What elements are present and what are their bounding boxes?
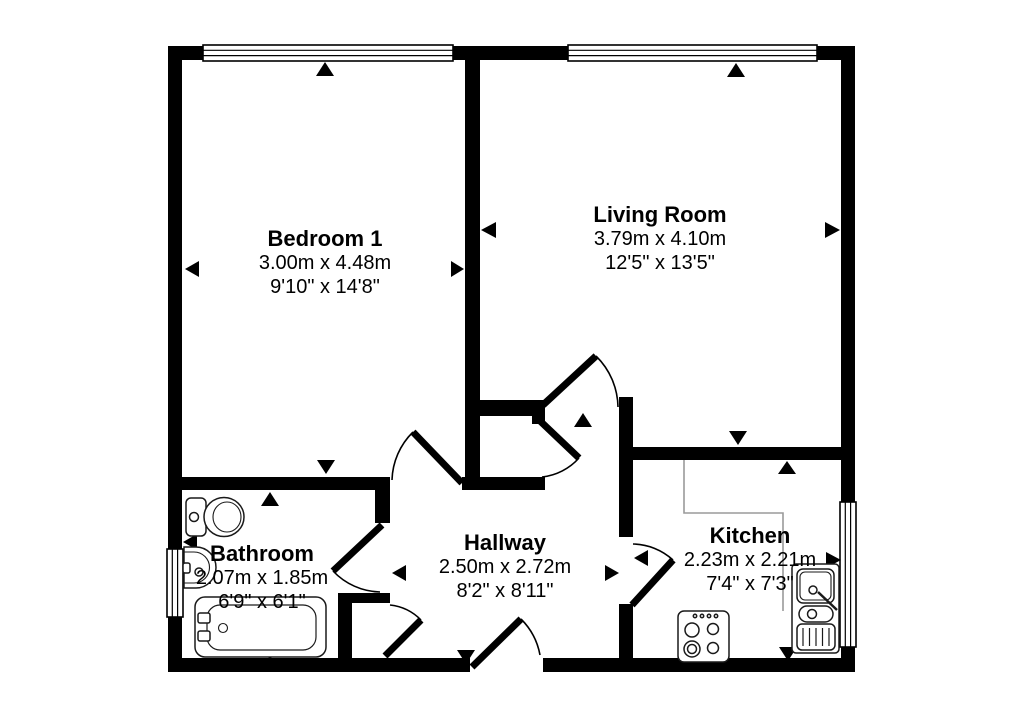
room-label-bathroom: Bathroom 2.07m x 1.85m 6'9" x 6'1" bbox=[196, 542, 328, 614]
arrow-up-icon bbox=[778, 461, 796, 474]
bath-tap bbox=[198, 613, 210, 623]
wall-segment bbox=[465, 60, 480, 490]
hob-knob bbox=[693, 614, 696, 617]
kitchen-window bbox=[840, 502, 856, 647]
door-leaf bbox=[385, 620, 421, 656]
room-name: Bathroom bbox=[196, 542, 328, 566]
room-size-imperial: 7'4" x 7'3" bbox=[684, 572, 816, 596]
bath-tap bbox=[198, 631, 210, 641]
room-label-living-room: Living Room 3.79m x 4.10m 12'5" x 13'5" bbox=[593, 203, 726, 275]
arrow-left-icon bbox=[392, 565, 406, 581]
room-size-metric: 2.07m x 1.85m bbox=[196, 566, 328, 590]
hob-burner bbox=[708, 643, 719, 654]
hob-knob bbox=[714, 614, 717, 617]
door-leaf bbox=[413, 432, 462, 483]
front-entrance-door bbox=[472, 619, 540, 667]
wall-segment bbox=[619, 447, 841, 460]
room-label-kitchen: Kitchen 2.23m x 2.21m 7'4" x 7'3" bbox=[684, 524, 816, 596]
wall-segment bbox=[168, 658, 470, 672]
hob-burner bbox=[708, 624, 719, 635]
living-room-window bbox=[568, 45, 817, 61]
door-swing-arc bbox=[333, 571, 380, 592]
door-leaf bbox=[632, 560, 673, 605]
door-leaf bbox=[543, 356, 596, 405]
door-leaf bbox=[333, 525, 382, 571]
arrow-left-icon bbox=[481, 222, 496, 238]
lower-cupboard-door bbox=[385, 605, 421, 656]
toilet bbox=[186, 498, 244, 537]
bedroom-door bbox=[392, 432, 462, 483]
door-leaf bbox=[538, 419, 579, 458]
hall-cupboard-door bbox=[538, 419, 579, 477]
floor-plan-graphics bbox=[0, 0, 1024, 724]
door-swing-arc bbox=[392, 432, 413, 480]
room-name: Kitchen bbox=[684, 524, 816, 548]
basin-tap bbox=[183, 563, 190, 573]
door-swing-arc bbox=[521, 619, 540, 655]
arrow-left-icon bbox=[634, 550, 648, 566]
arrow-down-icon bbox=[317, 460, 335, 474]
room-size-metric: 2.50m x 2.72m bbox=[439, 555, 571, 579]
bathroom-window bbox=[167, 549, 183, 617]
arrow-up-icon bbox=[316, 62, 334, 76]
wall-segment bbox=[375, 477, 390, 523]
room-size-imperial: 9'10" x 14'8" bbox=[259, 275, 391, 299]
room-name: Living Room bbox=[593, 203, 726, 227]
wall-segment bbox=[338, 593, 352, 663]
room-size-metric: 2.23m x 2.21m bbox=[684, 548, 816, 572]
cooker-hob bbox=[678, 611, 729, 662]
door-swing-arc bbox=[596, 356, 618, 407]
room-size-metric: 3.00m x 4.48m bbox=[259, 251, 391, 275]
hob-burner bbox=[685, 623, 699, 637]
hob-knob bbox=[707, 614, 710, 617]
room-size-imperial: 6'9" x 6'1" bbox=[196, 590, 328, 614]
room-size-imperial: 12'5" x 13'5" bbox=[593, 251, 726, 275]
arrow-up-icon bbox=[261, 492, 279, 506]
wall-segment bbox=[462, 477, 545, 490]
arrow-right-icon bbox=[451, 261, 464, 277]
arrow-up-icon bbox=[727, 63, 745, 77]
wall-segment bbox=[619, 397, 633, 537]
arrow-left-icon bbox=[185, 261, 199, 277]
hob-knob bbox=[700, 614, 703, 617]
wall-segment bbox=[619, 604, 633, 658]
wall-segment bbox=[182, 477, 390, 490]
bedroom-window bbox=[203, 45, 453, 61]
room-name: Bedroom 1 bbox=[259, 227, 391, 251]
floor-plan: Bedroom 1 3.00m x 4.48m 9'10" x 14'8" Li… bbox=[0, 0, 1024, 724]
door-leaf bbox=[472, 619, 521, 667]
living-room-door bbox=[543, 356, 618, 407]
room-size-metric: 3.79m x 4.10m bbox=[593, 227, 726, 251]
arrow-right-icon bbox=[605, 565, 619, 581]
arrow-up-icon bbox=[574, 413, 592, 427]
room-label-hallway: Hallway 2.50m x 2.72m 8'2" x 8'11" bbox=[439, 531, 571, 603]
kitchen-door bbox=[632, 544, 673, 605]
hob-burner bbox=[688, 645, 697, 654]
door-swing-arc bbox=[542, 458, 579, 477]
arrow-right-icon bbox=[825, 222, 840, 238]
arrow-down-icon bbox=[729, 431, 747, 445]
door-swing-arc bbox=[390, 605, 421, 620]
room-size-imperial: 8'2" x 8'11" bbox=[439, 579, 571, 603]
room-label-bedroom1: Bedroom 1 3.00m x 4.48m 9'10" x 14'8" bbox=[259, 227, 391, 299]
bathroom-door bbox=[333, 525, 382, 592]
bath-drain bbox=[219, 624, 228, 633]
room-name: Hallway bbox=[439, 531, 571, 555]
